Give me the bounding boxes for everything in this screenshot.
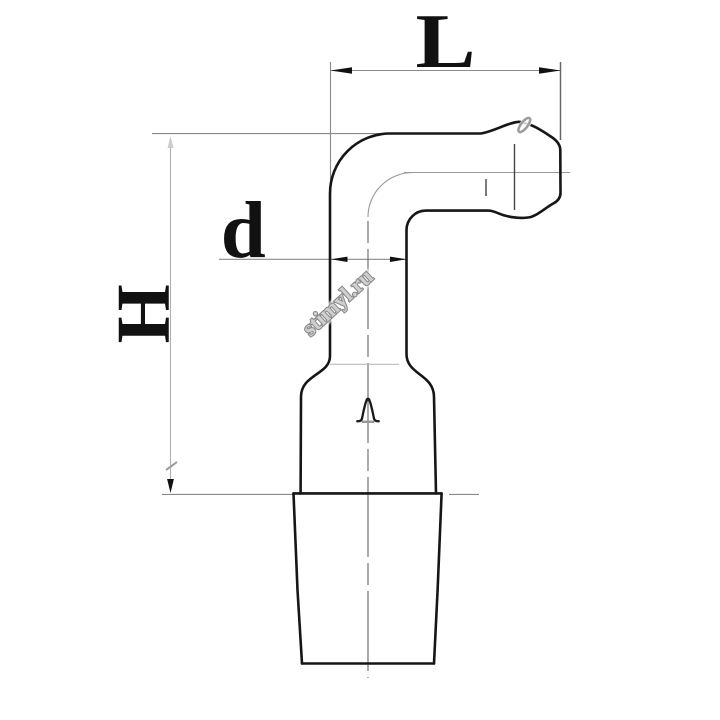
svg-text:d: d <box>221 185 266 275</box>
svg-text:H: H <box>101 284 185 343</box>
svg-text:L: L <box>416 0 476 84</box>
svg-text:stimyl.ru: stimyl.ru <box>297 264 378 341</box>
